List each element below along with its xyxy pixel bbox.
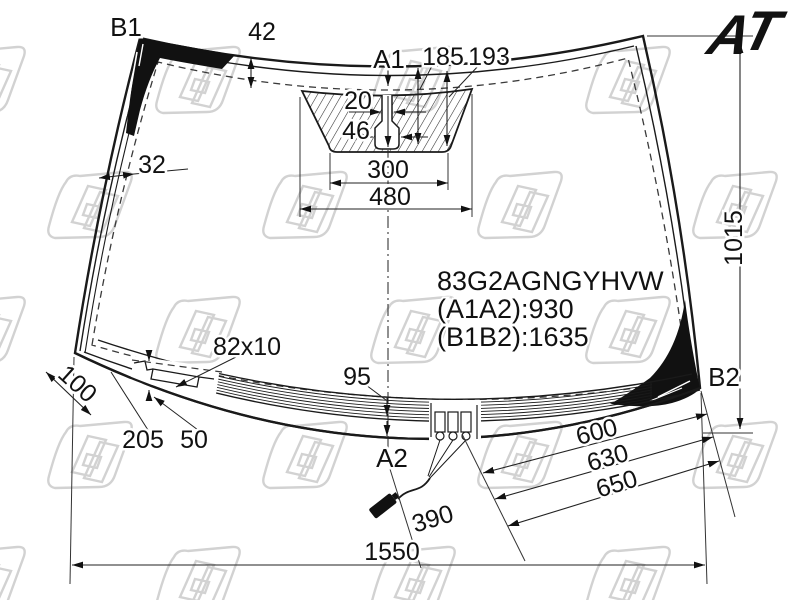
part-dist-a1a2: (A1A2):930 <box>437 294 574 324</box>
dim-label-32: 32 <box>138 151 166 179</box>
dim-label-82x10: 82x10 <box>213 333 281 361</box>
part-info-block: 83G2AGNGYHVW (A1A2):930 (B1B2):1635 <box>437 266 664 352</box>
dim-label-20: 20 <box>344 87 372 115</box>
drawing-canvas: B1 B2 A1 A2 42 32 185 193 20 46 300 480 … <box>0 0 800 600</box>
heater-terminals <box>429 400 481 442</box>
connector-plug <box>368 490 401 519</box>
brand-logo-at: T A <box>700 1 791 67</box>
part-dist-b1b2: (B1B2):1635 <box>437 322 589 352</box>
dim-label-50: 50 <box>180 426 208 454</box>
dim-label-1015: 1015 <box>720 210 748 266</box>
dim-label-46: 46 <box>342 117 370 145</box>
dim-label-100: 100 <box>52 360 102 409</box>
part-number: 83G2AGNGYHVW <box>437 266 664 296</box>
dim-label-42: 42 <box>248 18 276 46</box>
ref-label-a1: A1 <box>373 44 405 74</box>
ref-label-a2: A2 <box>376 443 408 473</box>
dim-label-205: 205 <box>122 426 164 454</box>
dim-label-390: 390 <box>409 500 457 539</box>
dim-label-300: 300 <box>367 156 409 184</box>
dim-label-1550: 1550 <box>364 538 420 566</box>
dim-label-193: 193 <box>468 43 510 71</box>
ref-label-b1: B1 <box>110 12 142 42</box>
dim-label-480: 480 <box>369 183 411 211</box>
ref-label-b2: B2 <box>708 362 740 392</box>
dim-label-95: 95 <box>343 363 371 391</box>
dim-label-185: 185 <box>422 43 464 71</box>
